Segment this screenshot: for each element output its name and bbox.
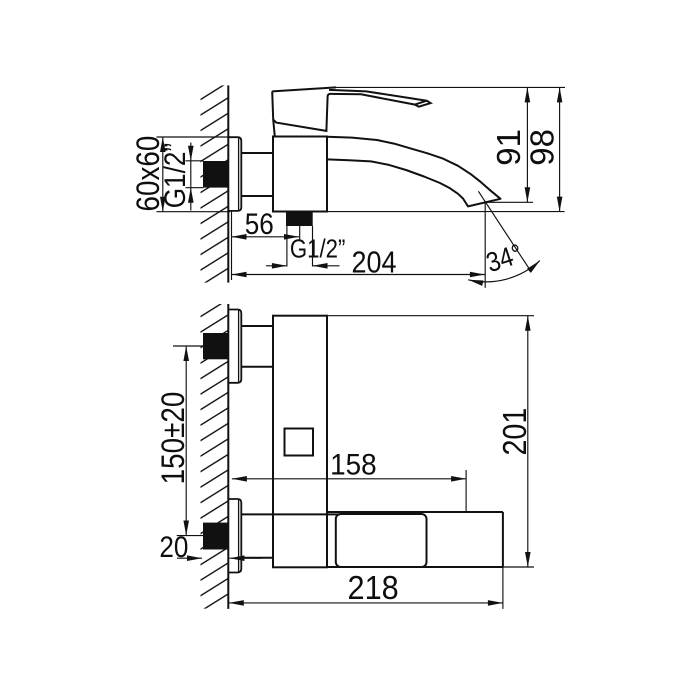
- svg-text:20: 20: [159, 530, 188, 563]
- svg-text:201: 201: [496, 408, 533, 456]
- svg-text:158: 158: [330, 449, 377, 482]
- svg-text:91: 91: [490, 129, 527, 166]
- svg-text:G1/2”: G1/2”: [158, 143, 191, 208]
- svg-text:150±20: 150±20: [156, 392, 191, 485]
- svg-text:G1/2”: G1/2”: [290, 235, 346, 264]
- svg-text:218: 218: [348, 569, 399, 606]
- svg-text:98: 98: [523, 129, 560, 166]
- svg-text:204: 204: [352, 246, 397, 280]
- svg-text:56: 56: [245, 207, 274, 240]
